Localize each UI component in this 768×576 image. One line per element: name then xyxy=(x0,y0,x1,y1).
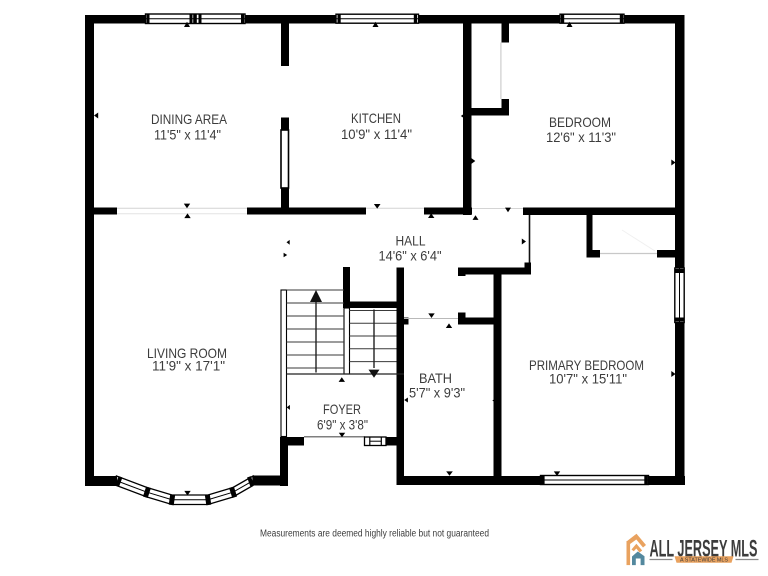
svg-text:14'6" x 6'4": 14'6" x 6'4" xyxy=(379,249,442,264)
svg-text:BATH: BATH xyxy=(419,371,452,386)
svg-text:10'9" x 11'4": 10'9" x 11'4" xyxy=(341,127,412,142)
svg-text:KITCHEN: KITCHEN xyxy=(351,111,401,126)
svg-text:11'9" x 17'1": 11'9" x 17'1" xyxy=(152,359,225,374)
svg-text:6'9" x 3'8": 6'9" x 3'8" xyxy=(317,418,368,433)
svg-text:A STATEWIDE MLS: A STATEWIDE MLS xyxy=(680,558,729,564)
svg-text:12'6" x 11'3": 12'6" x 11'3" xyxy=(546,130,616,145)
svg-text:FOYER: FOYER xyxy=(323,402,361,417)
svg-text:BEDROOM: BEDROOM xyxy=(549,115,611,130)
svg-text:11'5" x 11'4": 11'5" x 11'4" xyxy=(154,128,221,143)
svg-text:HALL: HALL xyxy=(396,234,426,249)
svg-text:10'7" x 15'11": 10'7" x 15'11" xyxy=(549,372,627,387)
svg-text:5'7" x 9'3": 5'7" x 9'3" xyxy=(409,386,465,401)
svg-text:DINING AREA: DINING AREA xyxy=(151,112,228,127)
svg-text:Measurements are deemed highly: Measurements are deemed highly reliable … xyxy=(260,529,489,540)
